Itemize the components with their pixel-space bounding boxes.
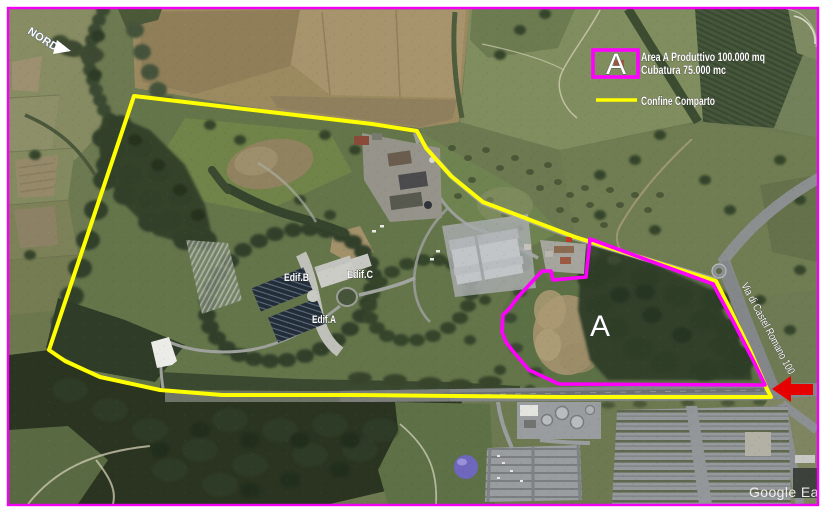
svg-text:Cubatura 75.000 mc: Cubatura 75.000 mc: [641, 63, 726, 77]
svg-text:A: A: [590, 310, 610, 343]
svg-text:Confine Comparto: Confine Comparto: [641, 94, 715, 108]
svg-text:Edif.B: Edif.B: [284, 272, 309, 284]
svg-text:Area A Produttivo 100.000 mq: Area A Produttivo 100.000 mq: [641, 50, 765, 64]
svg-text:Google Eart: Google Eart: [749, 484, 821, 500]
svg-text:Edif.A: Edif.A: [312, 314, 336, 326]
svg-text:Edif.C: Edif.C: [347, 269, 373, 281]
svg-text:A: A: [606, 48, 626, 81]
